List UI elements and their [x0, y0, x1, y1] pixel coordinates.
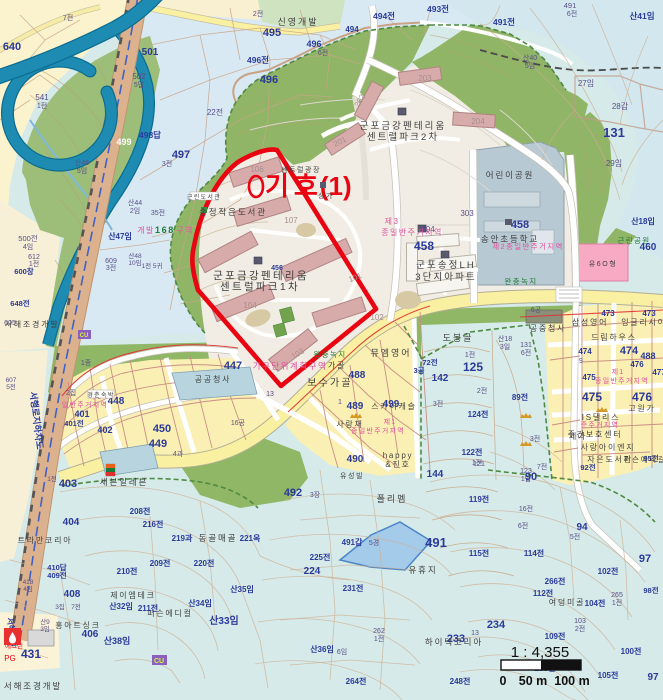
svg-text:산40: 산40	[523, 53, 537, 62]
svg-text:109전: 109전	[545, 631, 566, 641]
svg-text:502: 502	[132, 72, 146, 81]
svg-text:5전: 5전	[570, 532, 580, 541]
svg-text:기구단위계획구역: 기구단위계획구역	[253, 361, 328, 371]
svg-text:648전: 648전	[10, 298, 30, 308]
svg-text:600창: 600창	[14, 266, 34, 276]
svg-text:2집: 2집	[66, 388, 76, 397]
svg-text:204: 204	[471, 117, 485, 126]
svg-text:완충녹지: 완충녹지	[314, 350, 347, 359]
svg-text:105전: 105전	[598, 670, 619, 680]
svg-text:여덩미골: 여덩미골	[549, 597, 585, 607]
svg-text:CU: CU	[80, 333, 89, 339]
svg-text:491: 491	[564, 1, 577, 10]
svg-text:2전: 2전	[253, 9, 263, 18]
svg-text:군포금강펜테리움: 군포금강펜테리움	[360, 121, 447, 132]
svg-text:제1: 제1	[384, 418, 397, 426]
svg-text:496전: 496전	[247, 55, 269, 65]
svg-text:3전: 3전	[106, 263, 116, 272]
svg-text:CU: CU	[154, 658, 164, 665]
svg-text:5임: 5임	[77, 167, 87, 175]
svg-text:퍼슨에디갈: 퍼슨에디갈	[624, 455, 663, 464]
svg-text:3장: 3장	[310, 490, 321, 499]
svg-text:22전: 22전	[207, 107, 223, 117]
svg-text:뮤엠영어: 뮤엠영어	[370, 347, 411, 358]
svg-text:131: 131	[520, 342, 532, 349]
svg-text:&진호: &진호	[385, 459, 410, 469]
svg-text:유성빌: 유성빌	[340, 471, 364, 480]
svg-text:499: 499	[383, 399, 400, 410]
svg-text:264전: 264전	[346, 676, 367, 686]
svg-text:준주거지역: 준주거지역	[581, 420, 620, 429]
svg-text:225전: 225전	[310, 552, 331, 562]
svg-text:산36임: 산36임	[310, 644, 334, 654]
svg-text:6전: 6전	[518, 521, 528, 530]
svg-text:완충녹지: 완충녹지	[505, 277, 538, 286]
svg-text:489: 489	[347, 401, 364, 412]
svg-text:1전: 1전	[612, 598, 622, 607]
svg-text:3전: 3전	[530, 434, 540, 443]
svg-text:1: 1	[338, 399, 342, 406]
svg-text:447: 447	[224, 360, 242, 372]
svg-text:404: 404	[63, 517, 80, 528]
svg-text:103: 103	[574, 618, 586, 625]
svg-text:490: 490	[347, 454, 364, 465]
svg-text:402: 402	[97, 425, 112, 435]
svg-text:115전: 115전	[469, 548, 489, 558]
svg-text:209전: 209전	[150, 558, 171, 568]
svg-text:7전: 7전	[63, 13, 73, 22]
svg-text:보수가골: 보수가골	[307, 377, 353, 389]
svg-text:431: 431	[21, 647, 41, 661]
svg-text:476: 476	[632, 390, 652, 404]
svg-text:도봉골: 도봉골	[443, 333, 474, 343]
svg-text:450: 450	[153, 423, 171, 435]
svg-text:266전: 266전	[545, 576, 566, 586]
svg-text:1종: 1종	[81, 359, 92, 367]
svg-text:607: 607	[6, 377, 17, 384]
svg-text:근린도서관: 근린도서관	[187, 193, 221, 201]
svg-text:유휴지: 유휴지	[408, 565, 437, 575]
svg-text:262: 262	[373, 628, 385, 635]
svg-text:제1: 제1	[612, 368, 625, 376]
svg-text:센트럴파크2차: 센트럴파크2차	[367, 131, 439, 143]
svg-text:하이텍코리아: 하이텍코리아	[425, 637, 483, 647]
svg-text:7전: 7전	[537, 462, 547, 471]
svg-text:475: 475	[582, 390, 602, 404]
svg-text:5답: 5답	[134, 80, 145, 89]
svg-text:유6O형: 유6O형	[589, 260, 617, 268]
svg-text:산32임: 산32임	[109, 601, 133, 611]
svg-text:500전: 500전	[18, 233, 38, 243]
svg-text:4과: 4과	[173, 449, 184, 458]
svg-text:403: 403	[59, 478, 77, 490]
svg-text:폴리멤: 폴리멤	[377, 494, 408, 504]
svg-text:송정작은도서관: 송정작은도서관	[199, 207, 267, 217]
svg-text:501: 501	[142, 47, 159, 58]
svg-text:1전: 1전	[465, 350, 475, 359]
svg-text:418: 418	[23, 579, 34, 586]
svg-text:구역: 구역	[176, 225, 194, 235]
svg-text:고원가: 고원가	[628, 404, 655, 413]
svg-text:공공청사: 공공청사	[195, 375, 231, 384]
svg-text:144: 144	[427, 469, 444, 480]
svg-text:125: 125	[463, 360, 483, 374]
svg-text:개발: 개발	[137, 225, 155, 235]
svg-text:일반주거지역: 일반주거지역	[62, 400, 108, 409]
svg-text:9: 9	[579, 358, 583, 365]
svg-text:499: 499	[116, 137, 131, 147]
svg-text:203: 203	[418, 74, 432, 83]
svg-text:208전: 208전	[130, 506, 151, 516]
svg-text:16전: 16전	[519, 504, 533, 513]
svg-text:492: 492	[284, 487, 302, 499]
svg-text:제3: 제3	[385, 217, 400, 226]
svg-text:종일반주거지역: 종일반주거지역	[381, 227, 443, 237]
svg-text:491전: 491전	[493, 17, 515, 27]
svg-text:449: 449	[149, 438, 167, 450]
svg-text:6공: 6공	[531, 306, 542, 314]
svg-text:2임: 2임	[130, 207, 140, 215]
svg-text:124전: 124전	[468, 409, 489, 419]
svg-text:211전: 211전	[138, 603, 158, 613]
svg-text:112전: 112전	[533, 588, 553, 598]
svg-text:612: 612	[28, 254, 40, 261]
svg-text:72전: 72전	[422, 357, 437, 367]
svg-text:3일: 3일	[500, 342, 510, 351]
svg-text:640: 640	[3, 41, 21, 53]
svg-text:5경: 5경	[369, 538, 379, 547]
svg-text:28갑: 28갑	[612, 101, 629, 111]
svg-text:happy: happy	[383, 451, 414, 460]
svg-text:4임: 4임	[23, 585, 33, 593]
svg-text:491: 491	[425, 535, 447, 550]
svg-text:460: 460	[640, 242, 657, 253]
svg-text:4임: 4임	[23, 243, 33, 251]
svg-text:104: 104	[243, 301, 257, 310]
svg-text:산18: 산18	[498, 334, 512, 343]
svg-text:1 : 4,355: 1 : 4,355	[511, 644, 569, 661]
svg-text:산48: 산48	[128, 251, 142, 260]
svg-text:27임: 27임	[578, 79, 594, 88]
svg-text:3집: 3집	[55, 603, 65, 611]
svg-text:92전: 92전	[580, 462, 595, 472]
svg-text:100전: 100전	[621, 646, 642, 656]
svg-text:234: 234	[487, 619, 506, 631]
svg-text:494전: 494전	[373, 11, 395, 21]
svg-text:가골: 가골	[328, 361, 346, 370]
svg-text:6임: 6임	[337, 648, 347, 656]
svg-text:산38임: 산38임	[104, 635, 131, 646]
svg-text:7전: 7전	[71, 602, 81, 611]
svg-text:제이엠테크: 제이엠테크	[110, 590, 156, 600]
svg-text:541: 541	[35, 93, 49, 102]
svg-text:496: 496	[260, 74, 278, 86]
svg-text:0: 0	[500, 674, 507, 688]
svg-text:408: 408	[64, 589, 81, 600]
svg-text:231전: 231전	[343, 583, 364, 593]
svg-text:90: 90	[525, 471, 537, 483]
svg-text:107: 107	[284, 216, 298, 225]
svg-text:삼성영어: 삼성영어	[572, 317, 608, 327]
svg-text:산34임: 산34임	[188, 598, 212, 608]
svg-text:16공: 16공	[231, 419, 246, 427]
svg-text:131: 131	[603, 125, 625, 140]
svg-text:488: 488	[349, 370, 366, 381]
svg-text:트라만코리아: 트라만코리아	[18, 535, 73, 545]
svg-text:2전: 2전	[477, 386, 487, 395]
svg-text:13: 13	[266, 391, 274, 398]
svg-text:산18입: 산18입	[631, 216, 655, 226]
svg-text:종일반주거지역: 종일반주거지역	[595, 376, 649, 385]
svg-text:상가: 상가	[318, 191, 334, 200]
svg-text:서해조경개발: 서해조경개발	[5, 319, 60, 329]
svg-text:210전: 210전	[117, 566, 138, 576]
svg-text:잉글리시아: 잉글리시아	[621, 317, 663, 327]
svg-text:495: 495	[263, 27, 281, 39]
svg-text:119전: 119전	[469, 494, 489, 504]
svg-text:97: 97	[647, 672, 659, 683]
svg-text:동골매골: 동골매골	[199, 533, 238, 543]
svg-text:신영개발: 신영개발	[277, 17, 318, 27]
svg-text:114전: 114전	[524, 548, 544, 558]
svg-text:6전: 6전	[521, 348, 531, 357]
svg-text:3공: 3공	[413, 366, 424, 375]
svg-text:104전: 104전	[585, 598, 606, 608]
svg-text:산44: 산44	[128, 198, 142, 207]
svg-text:산46: 산46	[75, 158, 89, 167]
svg-text:406: 406	[82, 629, 99, 640]
svg-text:1전: 1전	[47, 474, 57, 483]
svg-text:기호(1): 기호(1)	[265, 171, 352, 201]
svg-text:100 m: 100 m	[554, 674, 589, 688]
svg-text:주간보호센터: 주간보호센터	[568, 429, 623, 439]
svg-text:경춘숙박: 경춘숙박	[87, 391, 114, 399]
svg-text:491갑: 491갑	[342, 537, 363, 547]
svg-text:220전: 220전	[194, 558, 215, 568]
svg-text:35전: 35전	[151, 208, 165, 217]
svg-text:공중청사: 공중청사	[530, 324, 566, 333]
svg-text:5전: 5전	[6, 382, 16, 391]
svg-text:248전: 248전	[450, 676, 471, 686]
svg-text:303: 303	[460, 209, 474, 218]
svg-text:3임: 3임	[40, 625, 50, 633]
svg-text:168: 168	[155, 225, 175, 235]
svg-text:2전: 2전	[575, 624, 585, 633]
svg-text:89전: 89전	[512, 392, 528, 402]
svg-text:세븐일레븐: 세븐일레븐	[100, 477, 148, 487]
svg-text:401: 401	[74, 409, 89, 419]
svg-text:3전: 3전	[433, 399, 443, 408]
svg-text:221옥: 221옥	[240, 533, 261, 543]
svg-text:401전: 401전	[64, 418, 84, 428]
svg-text:94: 94	[576, 522, 588, 533]
svg-text:458: 458	[414, 239, 434, 253]
svg-text:어린이공원: 어린이공원	[486, 170, 534, 180]
svg-text:265: 265	[611, 592, 623, 599]
svg-text:1전: 1전	[374, 634, 384, 643]
svg-text:산33임: 산33임	[209, 614, 239, 627]
svg-text:476: 476	[630, 360, 644, 369]
svg-text:서해조경개발: 서해조경개발	[4, 681, 62, 691]
svg-text:10임: 10임	[128, 259, 141, 267]
svg-text:6전: 6전	[318, 48, 328, 57]
svg-text:102전: 102전	[598, 566, 619, 576]
svg-text:3단지아파트: 3단지아파트	[415, 272, 477, 283]
svg-text:474: 474	[620, 345, 639, 357]
svg-text:50 m: 50 m	[519, 674, 548, 688]
svg-text:498답: 498답	[139, 130, 161, 140]
svg-text:1전 5귀: 1전 5귀	[142, 261, 163, 270]
svg-text:496: 496	[306, 39, 321, 49]
svg-text:PG: PG	[4, 654, 16, 663]
svg-text:드림하우스: 드림하우스	[591, 332, 637, 342]
svg-text:494: 494	[345, 25, 359, 34]
svg-text:102: 102	[370, 313, 384, 322]
svg-text:473: 473	[601, 309, 615, 318]
svg-text:106: 106	[250, 165, 264, 174]
svg-text:13: 13	[471, 630, 479, 637]
svg-text:6전: 6전	[567, 9, 577, 18]
svg-text:종일반주거지역: 종일반주거지역	[351, 426, 405, 435]
svg-text:409전: 409전	[47, 570, 67, 580]
svg-text:122전: 122전	[462, 447, 483, 457]
svg-text:산9: 산9	[40, 617, 50, 626]
svg-text:458: 458	[511, 219, 529, 231]
svg-text:제2종일반주거지역: 제2종일반주거지역	[492, 241, 564, 251]
svg-text:산35임: 산35임	[230, 584, 254, 594]
svg-text:474: 474	[578, 347, 592, 356]
svg-text:477: 477	[652, 368, 663, 377]
svg-text:219과: 219과	[172, 533, 193, 543]
svg-text:산41임: 산41임	[629, 11, 654, 21]
svg-text:센트럴파크1차: 센트럴파크1차	[220, 280, 300, 293]
svg-text:224: 224	[304, 566, 321, 577]
svg-text:3전: 3전	[162, 159, 172, 168]
svg-text:609: 609	[105, 258, 117, 265]
svg-text:98전: 98전	[643, 585, 658, 595]
svg-text:5임: 5임	[525, 62, 535, 70]
svg-text:142: 142	[432, 373, 449, 384]
svg-text:29임: 29임	[606, 159, 622, 168]
svg-text:497: 497	[172, 149, 190, 161]
svg-text:센트럴광장: 센트럴광장	[281, 165, 321, 174]
svg-text:군포송정LH: 군포송정LH	[416, 260, 476, 271]
svg-text:사랑아이엔지: 사랑아이엔지	[581, 442, 636, 452]
svg-text:1전: 1전	[37, 101, 47, 110]
svg-text:473: 473	[642, 309, 656, 318]
svg-text:97: 97	[639, 553, 651, 565]
svg-text:산47임: 산47임	[108, 231, 132, 241]
svg-text:493전: 493전	[427, 4, 449, 14]
svg-text:216전: 216전	[143, 519, 164, 529]
svg-text:488: 488	[640, 351, 655, 361]
svg-text:IS댈리스: IS댈리스	[582, 412, 620, 422]
svg-text:1전: 1전	[472, 458, 482, 467]
